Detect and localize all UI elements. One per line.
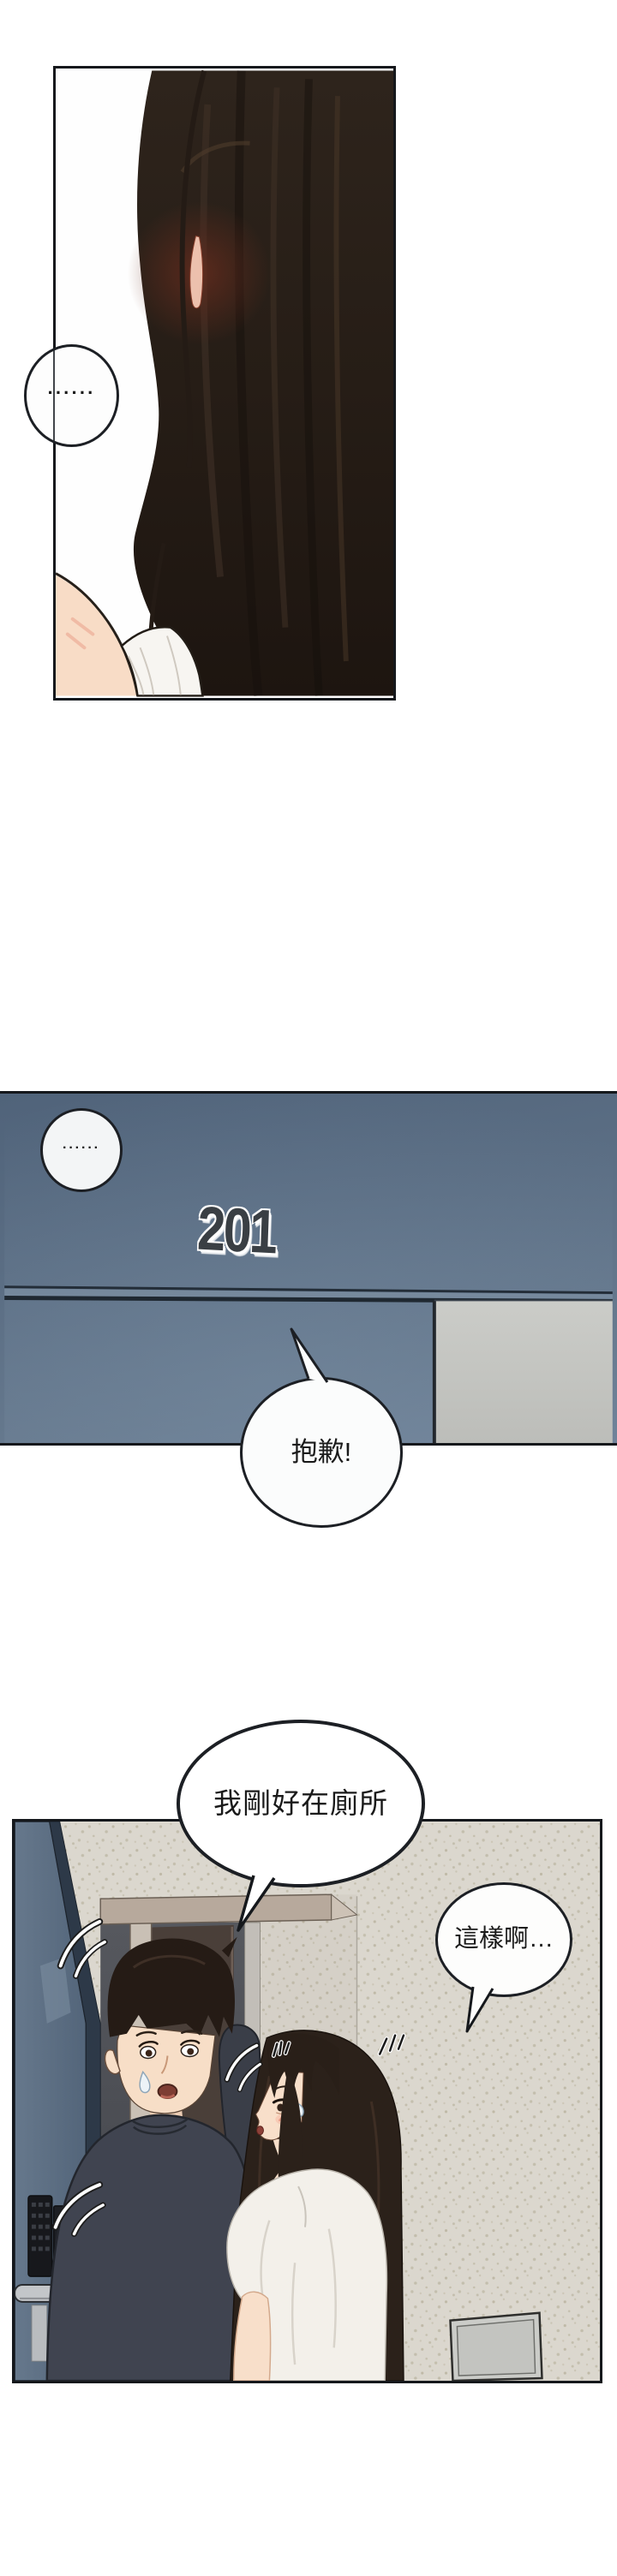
speech-bubble-sorry-tail	[283, 1324, 334, 1386]
woman-hair-back	[128, 71, 393, 696]
speech-bubble-sorry: 抱歉!	[240, 1377, 403, 1528]
speech-bubble-sorry-text: 抱歉!	[291, 1437, 352, 1468]
wall-access-panel	[450, 2313, 542, 2381]
man-mouth	[159, 2084, 177, 2098]
door-number-201: 201	[179, 1193, 294, 1269]
door-frame-strip	[434, 1300, 613, 1443]
speech-bubble-ellipsis-2: ······	[40, 1108, 123, 1192]
surprise-marks-left	[273, 2042, 289, 2056]
speech-bubble-toilet-tail	[231, 1867, 279, 1937]
speech-bubble-ellipsis-1: ······	[24, 344, 119, 447]
speech-bubble-isee-text: 這樣啊…	[454, 1925, 554, 1953]
speech-bubble-toilet-text: 我剛好在廁所	[213, 1787, 388, 1820]
speech-bubble-isee-tail	[456, 1980, 499, 2036]
panel-border-through-bubble	[53, 349, 55, 442]
speech-bubble-toilet: 我剛好在廁所	[177, 1720, 425, 1887]
speech-bubble-ellipsis-2-text: ······	[63, 1141, 100, 1160]
comic-page: ······	[0, 0, 617, 2576]
woman-mouth	[257, 2126, 264, 2135]
